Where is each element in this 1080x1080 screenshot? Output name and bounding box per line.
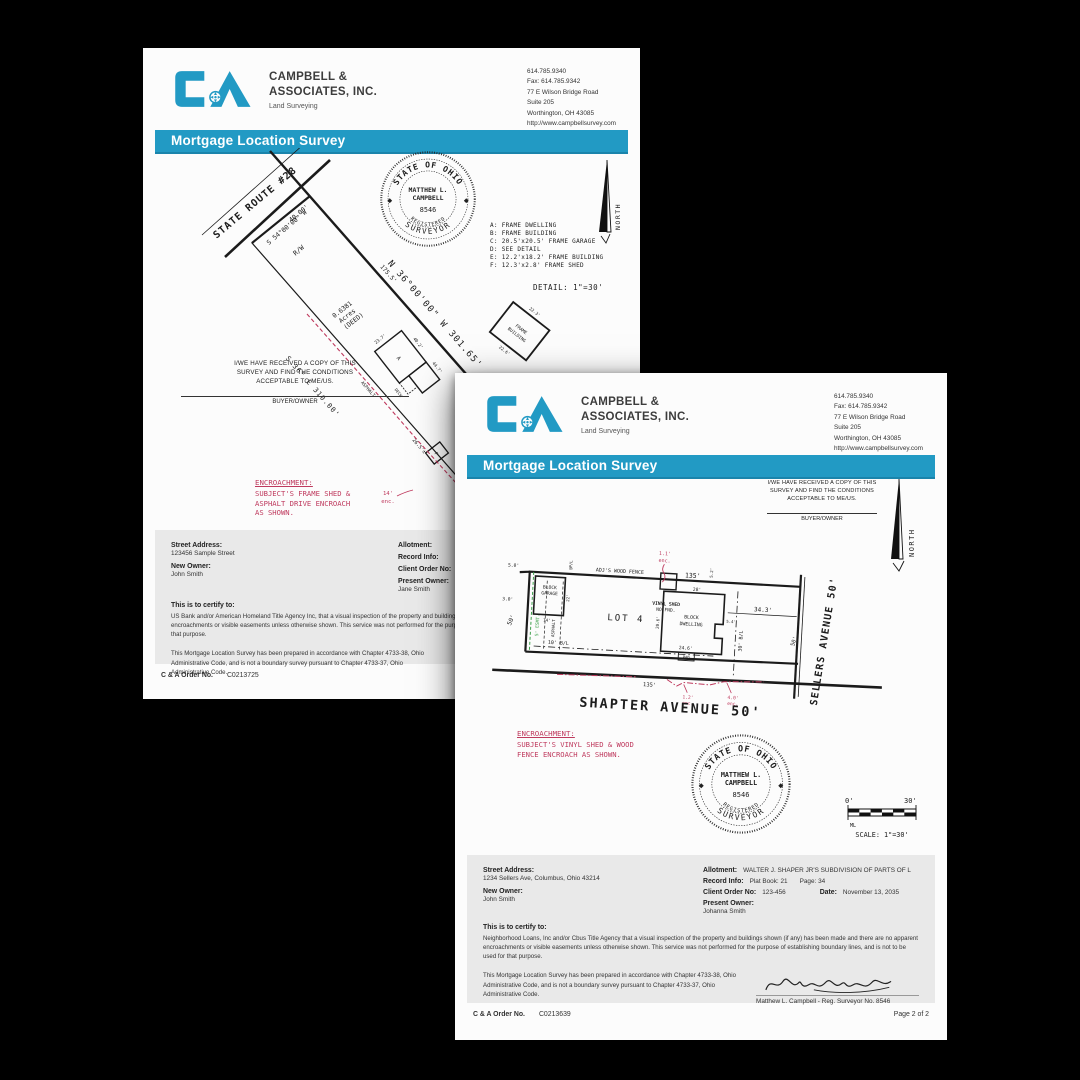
encroachment-line3: FENCE ENCROACH AS SHOWN. [517, 750, 634, 760]
garage-dim-22: 22' [565, 594, 570, 602]
building-line-10: 10' B/L [548, 640, 569, 647]
scale-label: SCALE: 1"=30' [855, 831, 908, 839]
contact-info: 614.785.9340 Fax: 614.785.9342 77 E Wils… [527, 66, 616, 129]
prepared-statement: This Mortgage Location Survey has been p… [483, 971, 738, 1005]
building-legend: A: FRAME DWELLING B: FRAME BUILDING C: 2… [490, 222, 607, 269]
page-number: Page 2 of 2 [894, 1011, 929, 1018]
record-book-value: Plat Book: 21 [750, 878, 788, 885]
contact-website: http://www.campbellsurvey.com [834, 444, 923, 454]
company-name-line2: ASSOCIATES, INC. [269, 85, 377, 100]
contact-city: Worthington, OH 43085 [834, 434, 923, 444]
record-column: Allotment: WALTER J. SHAPER JR'S SUBDIVI… [701, 867, 919, 915]
street-address-value: 123456 Sample Street [171, 550, 396, 557]
surveyor-seal: STATE OF OHIO SURVEYOR REGISTERED MATTHE… [688, 731, 794, 837]
surveyor-name-line: Matthew L. Campbell - Reg. Surveyor No. … [756, 995, 919, 1005]
dwelling-dim-206: 20.6' [655, 616, 661, 629]
contact-suite: Suite 205 [527, 98, 616, 108]
receipt-statement: I/WE HAVE RECEIVED A COPY OF THIS SURVEY… [759, 480, 885, 522]
dwelling-dim-246: 24.6' [679, 645, 693, 652]
company-tagline: Land Surveying [581, 428, 689, 435]
seal-number: 8546 [420, 206, 436, 214]
record-page-value: Page: 34 [800, 878, 826, 885]
encroachment-note: ENCROACHMENT: SUBJECT'S VINYL SHED & WOO… [517, 729, 634, 759]
fence-dim-135: 135' [685, 571, 701, 580]
encroachment-title: ENCROACHMENT: [255, 478, 350, 487]
seal-name-line2: CAMPBELL [725, 779, 757, 787]
scale-zero-label: 0' [845, 797, 853, 805]
client-order-value: 123-456 [762, 889, 785, 896]
receipt-line3: ACCEPTABLE TO ME/US. [759, 496, 885, 504]
contact-fax: Fax: 614.785.9342 [834, 402, 923, 412]
receipt-statement: I/WE HAVE RECEIVED A COPY OF THIS SURVEY… [173, 360, 417, 405]
record-info-label: Record Info: [703, 878, 744, 885]
bottom-dim-135: 135' [643, 682, 657, 689]
encroachment-line4: AS SHOWN. [255, 508, 350, 518]
contact-suite: Suite 205 [834, 423, 923, 433]
top-encroach-label: enc. [658, 558, 670, 565]
scale-thirty-label: 30' [904, 797, 917, 805]
date-label: Date: [820, 889, 837, 896]
garage-label2: GARAGE [541, 590, 558, 597]
certify-text: Neighborhood Loans, Inc and/or Cbus Titl… [483, 934, 919, 961]
order-number-value: C0213725 [227, 672, 259, 679]
address-column: Street Address: 1234 Sellers Ave, Columb… [483, 867, 701, 915]
contact-info: 614.785.9340 Fax: 614.785.9342 77 E Wils… [834, 391, 923, 454]
seal-name-line2: CAMPBELL [412, 194, 443, 202]
shed-letter: F [433, 451, 440, 457]
buyer-signature-line [767, 513, 877, 514]
header: CAMPBELL & ASSOCIATES, INC. Land Surveyi… [143, 66, 640, 129]
certify-label: This is to certify to: [483, 924, 919, 931]
encroachment-line2: SUBJECT'S FRAME SHED & [255, 489, 350, 499]
dim-343: 34.3' [754, 606, 772, 614]
dwelling-dim-28: 28' [693, 587, 702, 593]
acreage-label: 0.6381 Acres (DEED) [331, 297, 367, 333]
header: CAMPBELL & ASSOCIATES, INC. Land Surveyi… [455, 391, 947, 454]
property-info-panel: Street Address: 1234 Sellers Ave, Columb… [467, 855, 935, 1003]
svg-text:STATE OF OHIO: STATE OF OHIO [703, 743, 780, 771]
company-logo-icon [173, 66, 255, 112]
detail-building: FRAME BUILDING 22.3' 22.6' [485, 296, 554, 367]
surveyor-signature-block: Matthew L. Campbell - Reg. Surveyor No. … [738, 971, 919, 1005]
company-logo-icon [485, 391, 567, 437]
order-number-label: C & A Order No. [161, 672, 213, 679]
receipt-line2: SURVEY AND FIND THE CONDITIONS [173, 369, 417, 378]
dim-50-left: 50' [506, 614, 517, 627]
street-address-value: 1234 Sellers Ave, Columbus, Ohio 43214 [483, 875, 701, 882]
garage-label1: BLOCK [543, 584, 557, 591]
new-owner-label: New Owner: [483, 888, 701, 895]
encroachment-line2: SUBJECT'S VINYL SHED & WOOD [517, 740, 634, 750]
pad-label: PAD [683, 654, 691, 659]
north-arrow: NORTH [599, 160, 622, 243]
receipt-line2: SURVEY AND FIND THE CONDITIONS [759, 488, 885, 496]
order-number-value: C0213639 [539, 1011, 571, 1018]
address-column: Street Address: 123456 Sample Street New… [171, 542, 396, 593]
date-value: November 13, 2035 [843, 889, 899, 896]
scale-ml-label: ML [850, 823, 856, 829]
contact-street: 77 E Wilson Bridge Road [527, 88, 616, 98]
receipt-line1: I/WE HAVE RECEIVED A COPY OF THIS [759, 480, 885, 488]
survey-drawing-2: BLOCK GARAGE 22' 14' @P/L 5.0' 3.0' 50' … [465, 541, 937, 741]
dim-5-0: 5.0' [508, 562, 519, 569]
company-tagline: Land Surveying [269, 103, 377, 110]
dwelling-dim-1: 40.2' [411, 336, 424, 350]
new-owner-label: New Owner: [171, 563, 396, 570]
bottom-encroach-dim2: 4.0' [727, 695, 738, 702]
detail-title: DETAIL: 1"=30' [533, 283, 603, 292]
allotment-value: WALTER J. SHAPER JR'S SUBDIVISION OF PAR… [743, 867, 911, 874]
contact-fax: Fax: 614.785.9342 [527, 77, 616, 87]
buyer-owner-label: BUYER/OWNER [173, 399, 417, 405]
street-address-label: Street Address: [171, 542, 396, 549]
encroachment-pointer [397, 490, 413, 496]
dim-3-0: 3.0' [502, 596, 513, 603]
company-name-line1: CAMPBELL & [269, 70, 377, 85]
contact-street: 77 E Wilson Bridge Road [834, 413, 923, 423]
dim-5-2: 5.2' [709, 568, 715, 578]
scale-bar: 0' 30' ML SCALE: 1"=30' [841, 793, 923, 839]
easement-label: 5' ESMT. [534, 614, 541, 636]
present-owner-label: Present Owner: [703, 900, 919, 907]
client-order-label: Client Order No: [703, 889, 756, 896]
right-of-way-label: R/W [292, 244, 306, 258]
buyer-owner-label: BUYER/OWNER [759, 516, 885, 522]
contact-website: http://www.campbellsurvey.com [527, 119, 616, 129]
asphalt-label: ASPHALT [550, 619, 556, 637]
north-label: NORTH [614, 203, 622, 230]
dwelling-label2: DWELLING [679, 621, 703, 628]
sellers-avenue-label: SELLERS AVENUE 50' [809, 576, 841, 706]
svg-text:STATE OF OHIO: STATE OF OHIO [392, 161, 465, 187]
top-encroach-dim: 1.1' [659, 551, 671, 558]
encroachment-note: ENCROACHMENT: SUBJECT'S FRAME SHED & ASP… [255, 478, 350, 518]
seal-state-text: STATE OF OHIO [703, 743, 780, 771]
seal-number: 8546 [733, 790, 750, 799]
seal-state-text: STATE OF OHIO [392, 161, 465, 187]
seal-surveyor-text: SURVEYOR [403, 220, 452, 236]
property-line-label: @P/L [568, 560, 574, 570]
order-number-label: C & A Order No. [473, 1011, 525, 1018]
contact-city: Worthington, OH 43085 [527, 109, 616, 119]
encroach-dim-2: enc. [381, 499, 394, 505]
document-title-banner: Mortgage Location Survey [467, 455, 935, 479]
contact-phone: 614.785.9340 [527, 67, 616, 77]
order-footer: C & A Order No.C0213639 [473, 1011, 571, 1018]
street-address-label: Street Address: [483, 867, 701, 874]
vinyl-shed-label2: NO FND. [656, 607, 676, 614]
encroachment-line3: ASPHALT DRIVE ENCROACH [255, 499, 350, 509]
order-footer: C & A Order No.C0213725 [161, 672, 259, 679]
survey-document-page-2: CAMPBELL & ASSOCIATES, INC. Land Surveyi… [455, 373, 947, 1040]
desktop: { "colors": { "brand_blue": "#229ac4", "… [0, 0, 1080, 1080]
new-owner-value: John Smith [483, 896, 701, 903]
dwelling-dim-2: 44.7' [430, 361, 443, 375]
encroachment-title: ENCROACHMENT: [517, 729, 634, 738]
building-line-30: 30' B/L [738, 630, 745, 651]
lot-label: LOT 4 [607, 613, 645, 625]
encroach-dim-1: 14' [383, 491, 393, 497]
new-owner-value: John Smith [171, 571, 396, 578]
garage-dim-14: 14' [543, 618, 551, 623]
present-owner-value: Johanna Smith [703, 908, 919, 915]
contact-phone: 614.785.9340 [834, 392, 923, 402]
receipt-line3: ACCEPTABLE TO ME/US. [173, 378, 417, 387]
seal-name-line1: MATTHEW L. [721, 771, 761, 779]
receipt-line1: I/WE HAVE RECEIVED A COPY OF THIS [173, 360, 417, 369]
surveyor-signature-icon [756, 971, 906, 995]
company-name: CAMPBELL & ASSOCIATES, INC. Land Surveyi… [269, 70, 377, 110]
dwelling-label1: BLOCK [684, 614, 699, 621]
surveyor-seal: STATE OF OHIO SURVEYOR REGISTERED MATTHE… [377, 148, 479, 250]
company-name-line2: ASSOCIATES, INC. [581, 410, 689, 425]
company-name-line1: CAMPBELL & [581, 395, 689, 410]
company-name: CAMPBELL & ASSOCIATES, INC. Land Surveyi… [581, 395, 689, 435]
buyer-signature-line [181, 396, 409, 397]
allotment-label: Allotment: [703, 867, 737, 874]
ne-bearing-label: N 36°00'00" W 301.65' [385, 259, 484, 370]
dwelling-dim-54: 5.4' [726, 619, 736, 625]
seal-name-line1: MATTHEW L. [409, 186, 448, 194]
svg-text:SURVEYOR: SURVEYOR [403, 220, 452, 236]
